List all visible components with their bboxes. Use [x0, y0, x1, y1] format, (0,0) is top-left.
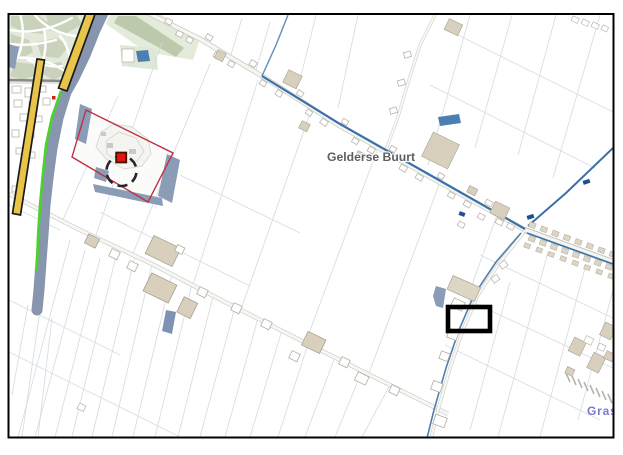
svg-text:Gelderse Buurt: Gelderse Buurt	[327, 150, 415, 164]
